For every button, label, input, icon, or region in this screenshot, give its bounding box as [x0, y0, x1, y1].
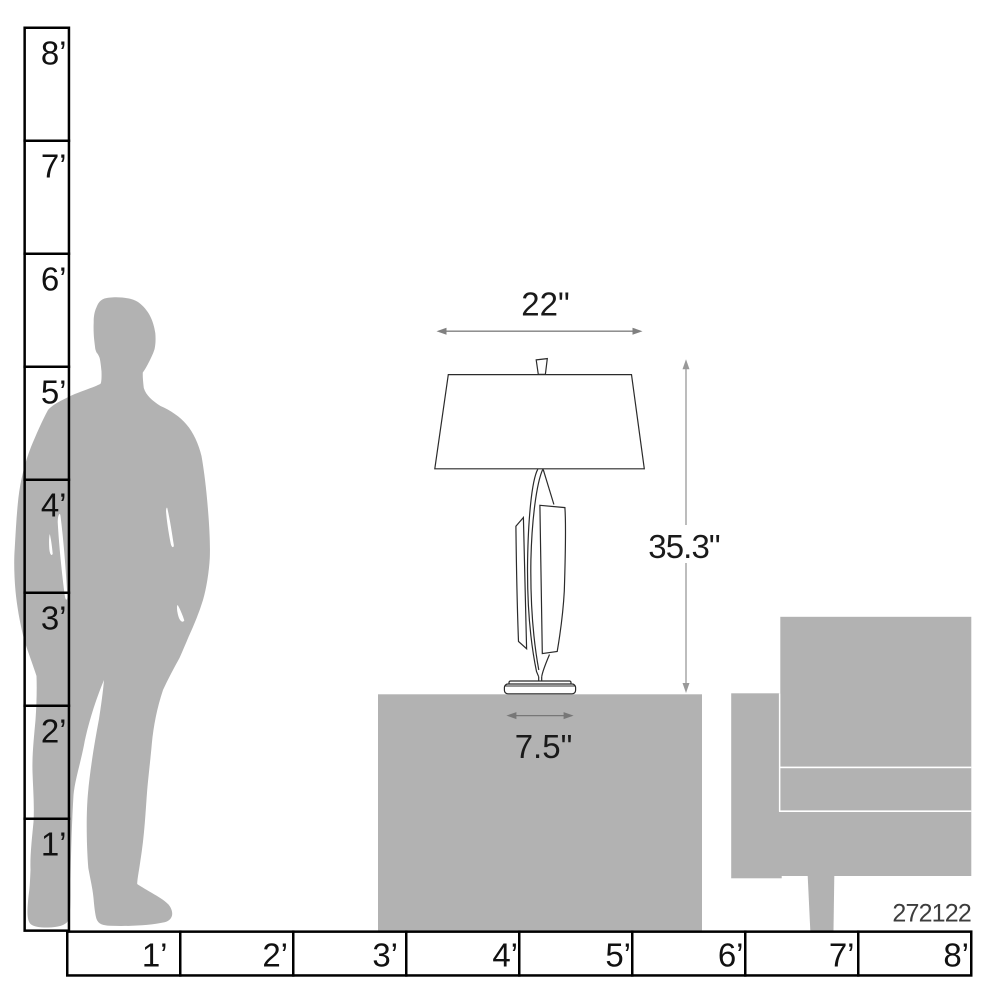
svg-text:6’: 6’: [41, 261, 67, 298]
svg-text:7.5": 7.5": [515, 728, 573, 765]
svg-text:2’: 2’: [262, 937, 288, 974]
svg-text:7’: 7’: [829, 937, 855, 974]
svg-text:1’: 1’: [41, 826, 67, 863]
svg-text:6’: 6’: [718, 937, 744, 974]
svg-text:22": 22": [521, 286, 569, 323]
svg-text:3’: 3’: [41, 600, 67, 637]
svg-text:7’: 7’: [41, 148, 67, 185]
svg-text:1’: 1’: [142, 937, 168, 974]
svg-text:8’: 8’: [41, 35, 67, 72]
svg-text:8’: 8’: [943, 937, 969, 974]
svg-text:4’: 4’: [41, 487, 67, 524]
svg-text:5’: 5’: [605, 937, 631, 974]
svg-text:35.3": 35.3": [648, 528, 720, 565]
svg-text:3’: 3’: [372, 937, 398, 974]
svg-text:4’: 4’: [492, 937, 518, 974]
svg-text:272122: 272122: [892, 900, 971, 928]
svg-text:5’: 5’: [41, 374, 67, 411]
svg-text:2’: 2’: [41, 713, 67, 750]
